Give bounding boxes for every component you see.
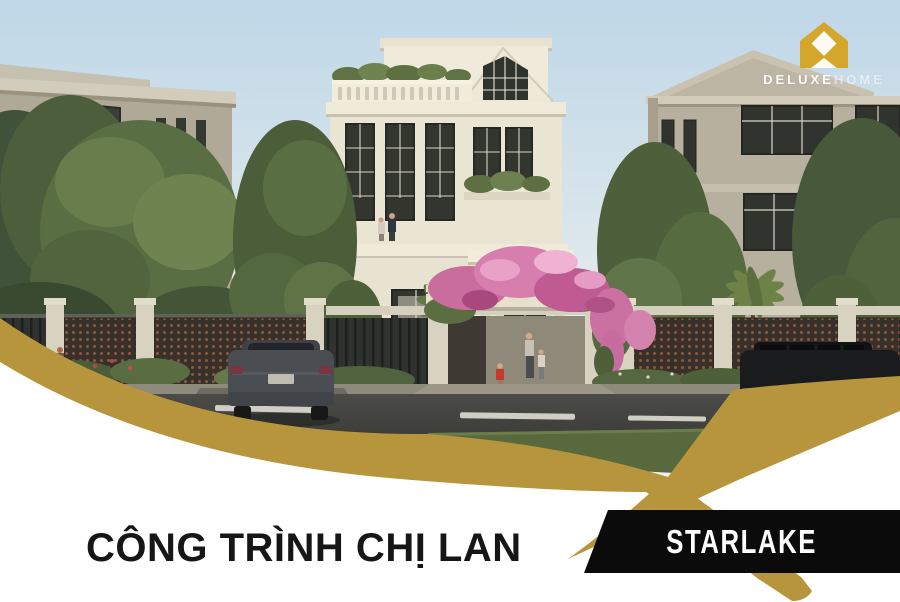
sedan-car (224, 340, 340, 427)
location-badge: STARLAKE (584, 510, 900, 573)
project-title: CÔNG TRÌNH CHỊ LAN (86, 524, 556, 572)
poster: DELUXEHOME CÔNG TRÌNH CHỊ LAN STARLAKE (0, 0, 900, 602)
location-badge-label: STARLAKE (667, 523, 818, 561)
